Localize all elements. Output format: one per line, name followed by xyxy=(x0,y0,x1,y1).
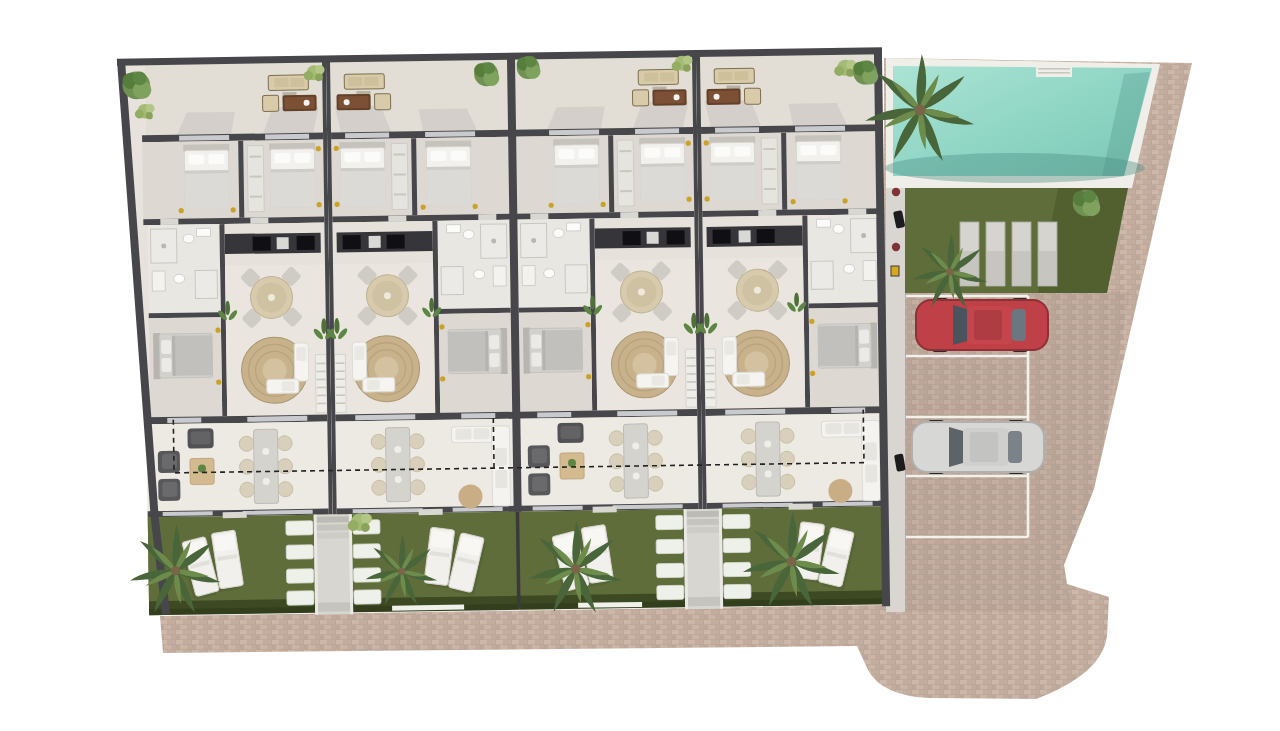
utility-box xyxy=(891,266,899,276)
walkway-1 xyxy=(314,514,353,615)
unit-3 xyxy=(511,53,704,610)
curb xyxy=(392,605,464,611)
residential-building xyxy=(117,47,890,621)
car-red xyxy=(916,298,1048,352)
site-plan-canvas xyxy=(0,0,1280,731)
planter-pot xyxy=(892,243,900,251)
curb xyxy=(578,602,642,608)
unit-1 xyxy=(141,59,334,616)
walkway-2 xyxy=(684,509,723,610)
floor-plan-rendering xyxy=(0,0,1280,731)
car-silver xyxy=(912,420,1044,474)
planter-pot xyxy=(892,188,900,196)
pool-steps xyxy=(1036,64,1072,77)
